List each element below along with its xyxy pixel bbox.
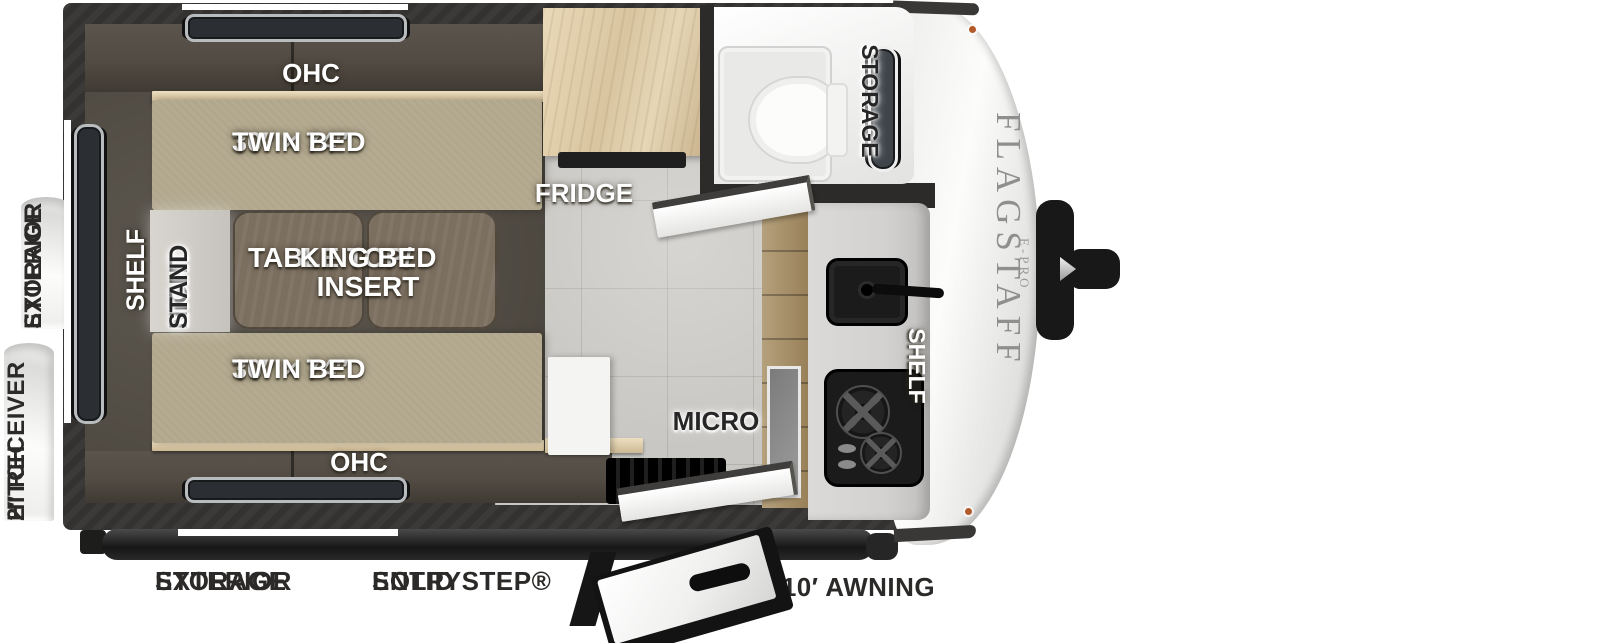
stove-knob-1 [838,444,856,453]
toilet-tank [826,83,848,157]
ohc-top-label: OHC [261,58,361,89]
marker-light-bottom [965,508,972,515]
stove-knob-2 [838,460,856,469]
ohc-bottom-label: OHC [309,447,409,478]
bathroom-storage-label: STORAGE [859,34,883,168]
caption-line: ENTRY [372,566,462,597]
bathroom-wall-left [700,5,714,205]
brand-epro-text: E-PRO [1016,238,1032,334]
marker-light-top [969,26,976,33]
fridge-cabinet [543,8,701,156]
side-seat [548,357,610,455]
fridge-label: FRIDGE [514,178,654,209]
storage-access-strip-top [182,4,408,10]
caption-line: STORAGE [21,207,46,329]
window-bottom [185,477,407,503]
table-label-line: KING BED INSERT [248,243,488,301]
hitch-coupler [1070,249,1120,289]
left-caption-receiver-hitch: 2″ RECEIVER HITCH [4,343,54,521]
solid-step-handle-cutout [688,561,752,592]
floorplan-canvas: EXTERIOR STORAGE 2″ RECEIVER HITCH FLAGS… [0,0,1600,643]
window-left [74,124,104,424]
caption-line: HITCH [4,445,29,521]
night-stand-label: NIGHT STAND [166,209,220,329]
storage-access-strip-bottom [178,529,398,536]
kitchen-shelf-label: SHELF [906,321,930,411]
fridge-vent [558,152,686,168]
caption-line: STORAGE [155,566,287,597]
micro-label: MICRO [646,406,786,437]
storage-access-strip-left [64,120,71,423]
night-stand-line: STAND [166,245,193,329]
bed-name: TWIN BED [232,127,365,157]
stove-burner-large [836,385,890,439]
bed-name: TWIN BED [232,354,365,384]
twin-bed-bottom [152,333,542,443]
window-top [185,14,407,42]
stove-burner-small [860,432,902,474]
bedroom-shelf-label: SHELF [122,224,148,316]
